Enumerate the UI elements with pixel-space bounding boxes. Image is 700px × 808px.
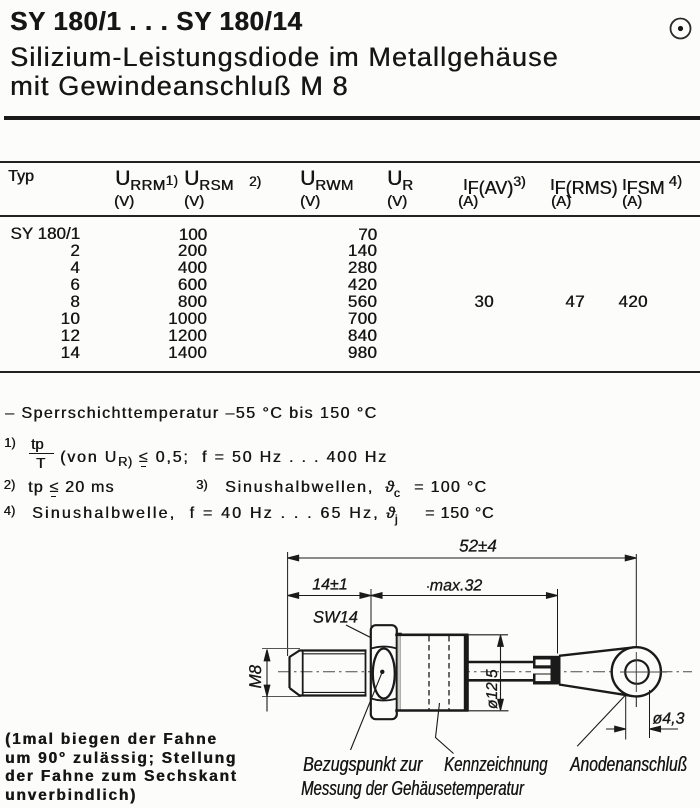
svg-text:14±1: 14±1 bbox=[312, 577, 347, 594]
svg-text:52±4: 52±4 bbox=[459, 537, 497, 556]
svg-text:ø12,5: ø12,5 bbox=[484, 669, 501, 709]
svg-text:SW14: SW14 bbox=[313, 609, 358, 627]
svg-text:ø4,3: ø4,3 bbox=[653, 711, 685, 728]
svg-text:M8: M8 bbox=[246, 664, 265, 688]
svg-text:max.32: max.32 bbox=[430, 578, 483, 595]
